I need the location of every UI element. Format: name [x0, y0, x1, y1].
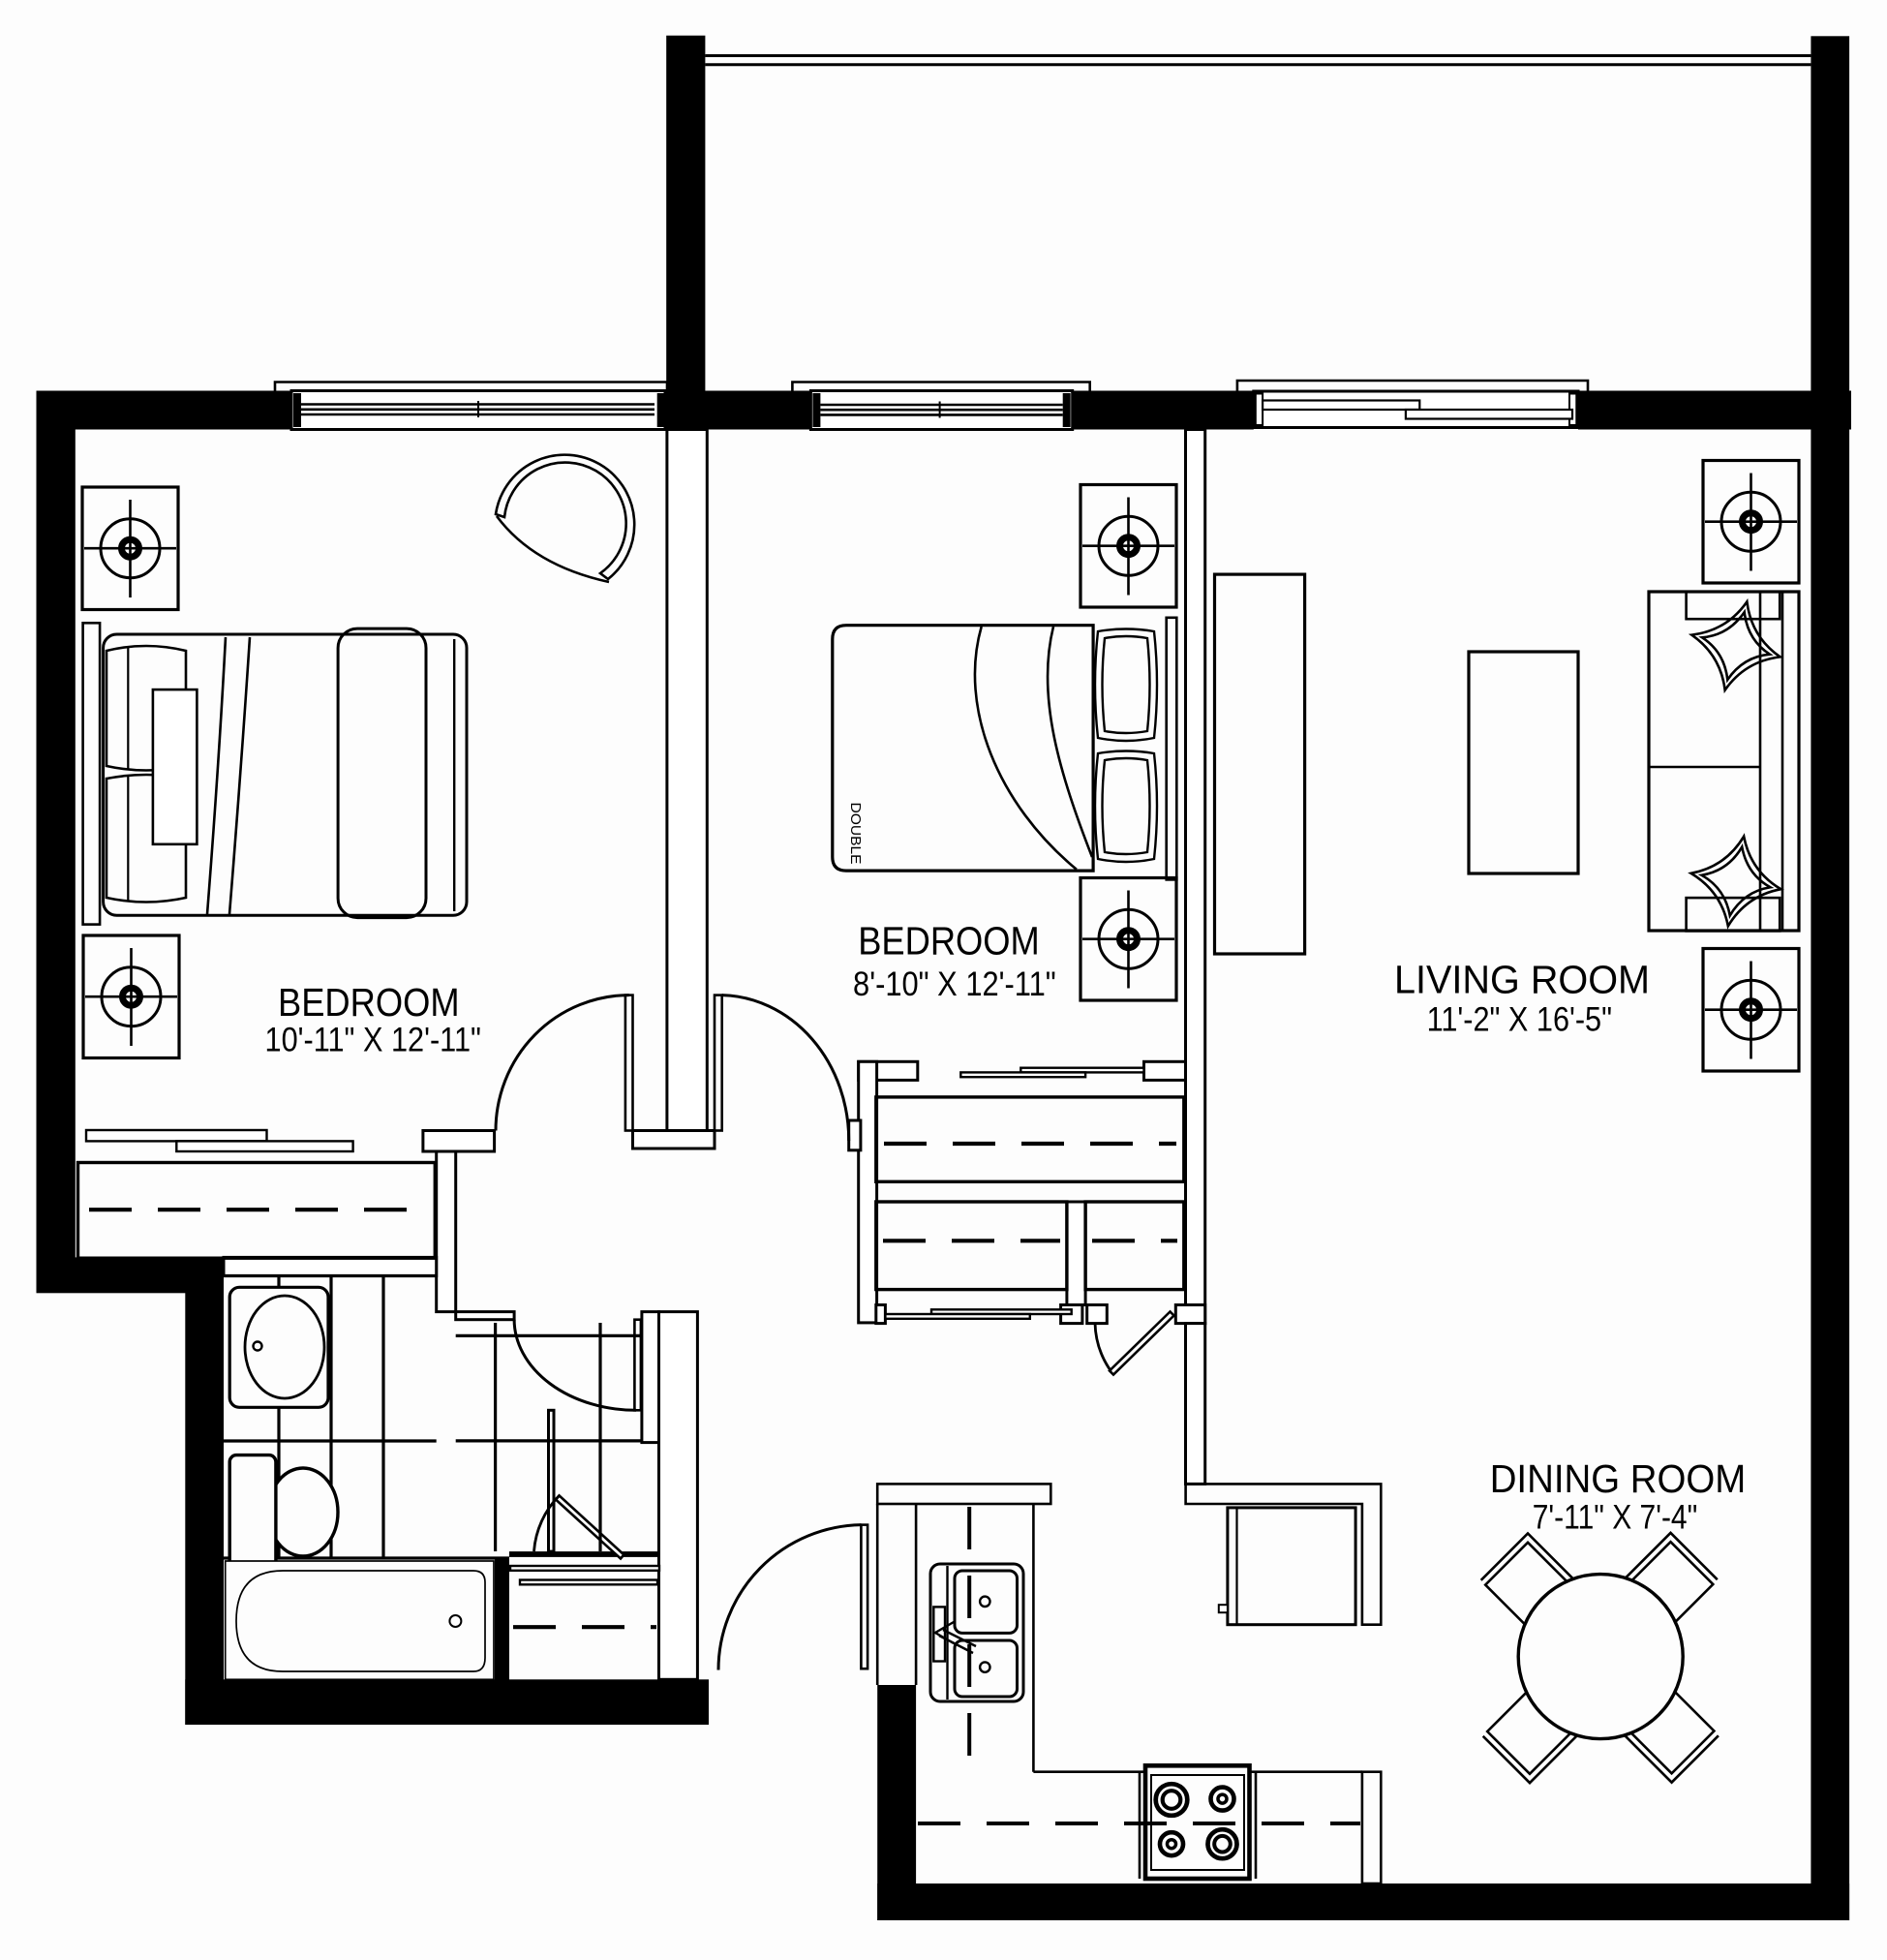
- svg-text:BEDROOM: BEDROOM: [858, 918, 1040, 963]
- svg-text:8'-10" X 12'-11": 8'-10" X 12'-11": [853, 965, 1056, 1003]
- svg-text:11'-2" X 16'-5": 11'-2" X 16'-5": [1427, 1001, 1612, 1039]
- svg-text:10'-11" X 12'-11": 10'-11" X 12'-11": [265, 1022, 481, 1059]
- svg-text:DOUBLE: DOUBLE: [847, 803, 864, 865]
- svg-text:LIVING ROOM: LIVING ROOM: [1394, 958, 1650, 1002]
- svg-text:7'-11" X 7'-4": 7'-11" X 7'-4": [1533, 1499, 1698, 1537]
- svg-text:DINING ROOM: DINING ROOM: [1490, 1456, 1747, 1501]
- svg-text:BEDROOM: BEDROOM: [278, 980, 460, 1025]
